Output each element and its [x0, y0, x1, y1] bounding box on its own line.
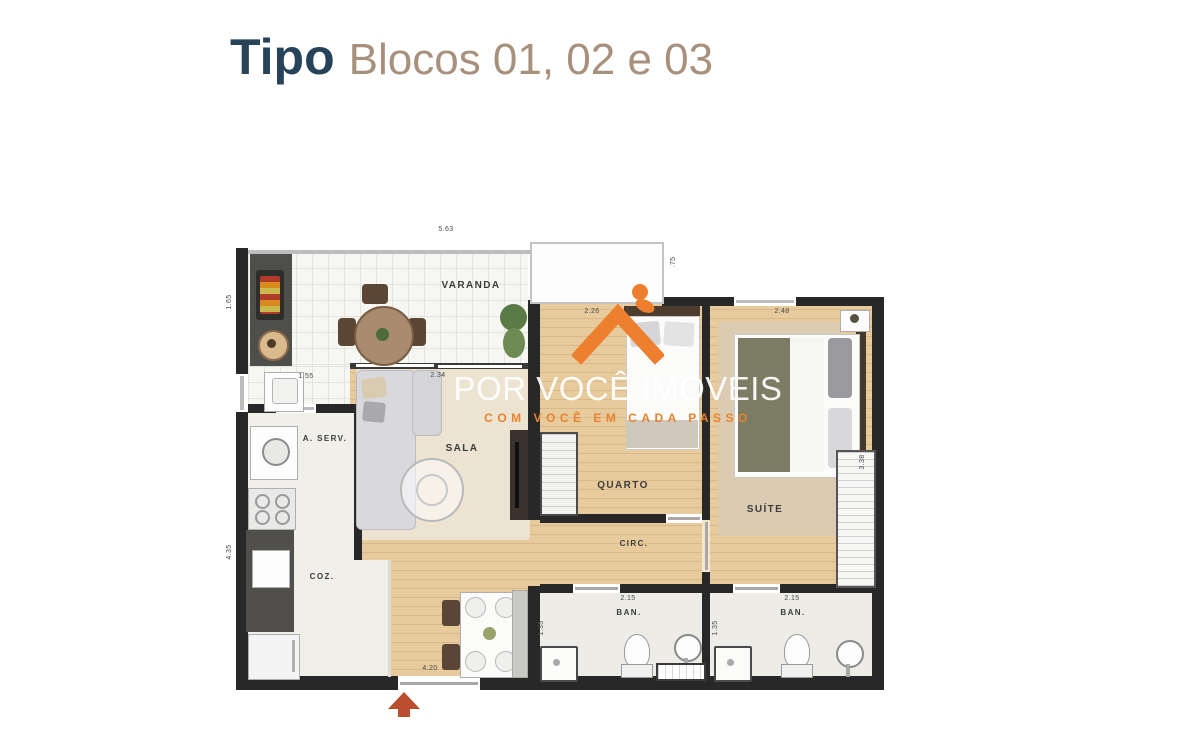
ban1-toilet-bowl	[624, 634, 650, 668]
sofa-pillow-gray	[362, 401, 386, 423]
dim-varanda-side: .75	[670, 248, 678, 276]
ban1-glassbox	[656, 663, 706, 681]
dim-top: 5.63	[416, 226, 476, 234]
dim-suite-depth: 3.38	[859, 447, 867, 477]
label-suite: SUÍTE	[730, 504, 800, 515]
label-aserv: A. SERV.	[294, 434, 356, 443]
entry-arrow	[388, 692, 420, 709]
dim-left-lower: 4.35	[226, 538, 234, 566]
sideboard	[512, 590, 528, 678]
sofa-pillow-beige	[361, 376, 388, 399]
burner-4	[275, 510, 290, 525]
ban2-sink	[836, 640, 864, 668]
dim-ban2-depth: 1.35	[712, 614, 720, 642]
dim-ban2-width: 2.15	[770, 595, 814, 603]
microwave	[252, 550, 290, 588]
dim-ban1-depth: 1.35	[538, 614, 546, 642]
table-centerpiece	[483, 627, 496, 640]
quarto-wardrobe	[540, 432, 578, 516]
watermark: POR VOCÊ IMÓVEIS COM VOCÊ EM CADA PASSO	[458, 282, 778, 425]
suite-closet	[836, 450, 876, 588]
nightstand-lamp	[850, 314, 859, 323]
label-ban1: BAN.	[604, 608, 654, 617]
grill-food	[260, 276, 280, 314]
entry-arrow-stem	[398, 708, 410, 717]
ban1-toilet-tank	[621, 664, 653, 678]
kitchen-divider	[388, 560, 391, 677]
page: Tipo Blocos 01, 02 e 03	[0, 0, 1200, 750]
tv-panel	[510, 430, 528, 520]
ban2-toilet-tank	[781, 664, 813, 678]
watermark-brand: POR VOCÊ IMÓVEIS	[454, 370, 783, 408]
glass-table-inner	[416, 474, 448, 506]
washer-door	[262, 438, 290, 466]
door-quarto-leaf	[668, 517, 700, 520]
label-coz: COZ.	[292, 572, 352, 581]
house-logo-icon	[572, 282, 664, 368]
window-left-line	[240, 376, 244, 410]
laundry-sink-basin	[272, 378, 298, 404]
dining-chair-top	[362, 284, 388, 304]
stove	[248, 488, 296, 530]
ban2-shower-drain	[727, 659, 734, 666]
label-quarto: QUARTO	[586, 480, 660, 491]
burner-1	[255, 494, 270, 509]
bowl-center	[267, 339, 276, 348]
ban2-sink-pedestal	[846, 664, 850, 677]
burner-2	[275, 494, 290, 509]
door-ban1-leaf	[575, 587, 618, 590]
label-sala: SALA	[432, 443, 492, 454]
wall-ban-top-a	[540, 584, 573, 593]
ban1-sink	[674, 634, 702, 662]
fridge-handle	[292, 640, 295, 672]
door-suite-leaf	[705, 522, 708, 570]
wall-ban-top-b	[620, 584, 733, 593]
sliding-door-glass-1	[356, 364, 434, 367]
table-plant	[376, 328, 389, 341]
dinner-chair-1	[442, 600, 460, 626]
dim-left-upper: 1.65	[226, 288, 234, 316]
dim-aserv: 1.55	[284, 373, 328, 381]
dim-entry: 4.20	[408, 665, 452, 673]
page-title: Tipo Blocos 01, 02 e 03	[230, 28, 713, 86]
suite-duvet-fold	[790, 338, 824, 472]
plate-3	[465, 651, 486, 672]
door-entry-leaf	[400, 682, 478, 685]
label-ban2: BAN.	[768, 608, 818, 617]
tv-screen	[515, 442, 519, 508]
plate-1	[465, 597, 486, 618]
burner-3	[255, 510, 270, 525]
title-text: Tipo	[230, 28, 335, 86]
watermark-tagline: COM VOCÊ EM CADA PASSO	[484, 411, 752, 425]
ban1-shower-drain	[553, 659, 560, 666]
ban2-toilet-bowl	[784, 634, 810, 668]
door-ban2-leaf	[735, 587, 778, 590]
suite-pillow-1	[828, 338, 852, 398]
label-circ: CIRC.	[604, 539, 664, 548]
subtitle-text: Blocos 01, 02 e 03	[349, 35, 713, 85]
dim-ban1-width: 2.15	[606, 595, 650, 603]
